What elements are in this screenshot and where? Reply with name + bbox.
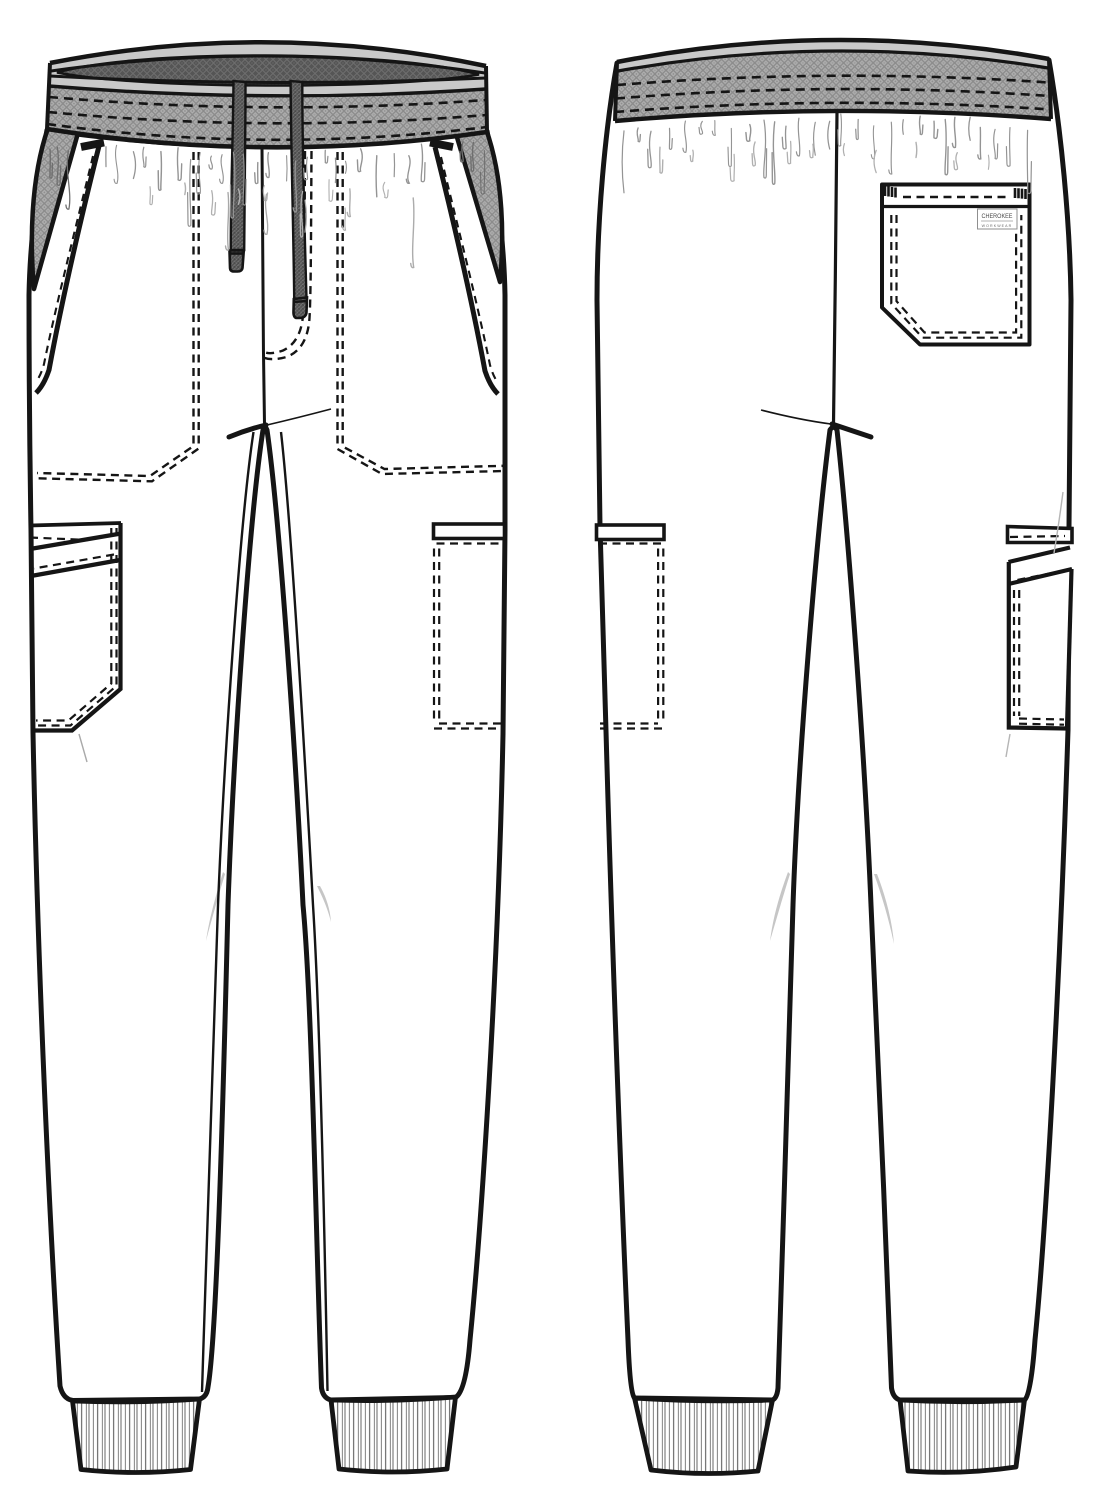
svg-text:CHEROKEE: CHEROKEE bbox=[982, 213, 1013, 220]
svg-text:WORKWEAR: WORKWEAR bbox=[982, 224, 1013, 228]
